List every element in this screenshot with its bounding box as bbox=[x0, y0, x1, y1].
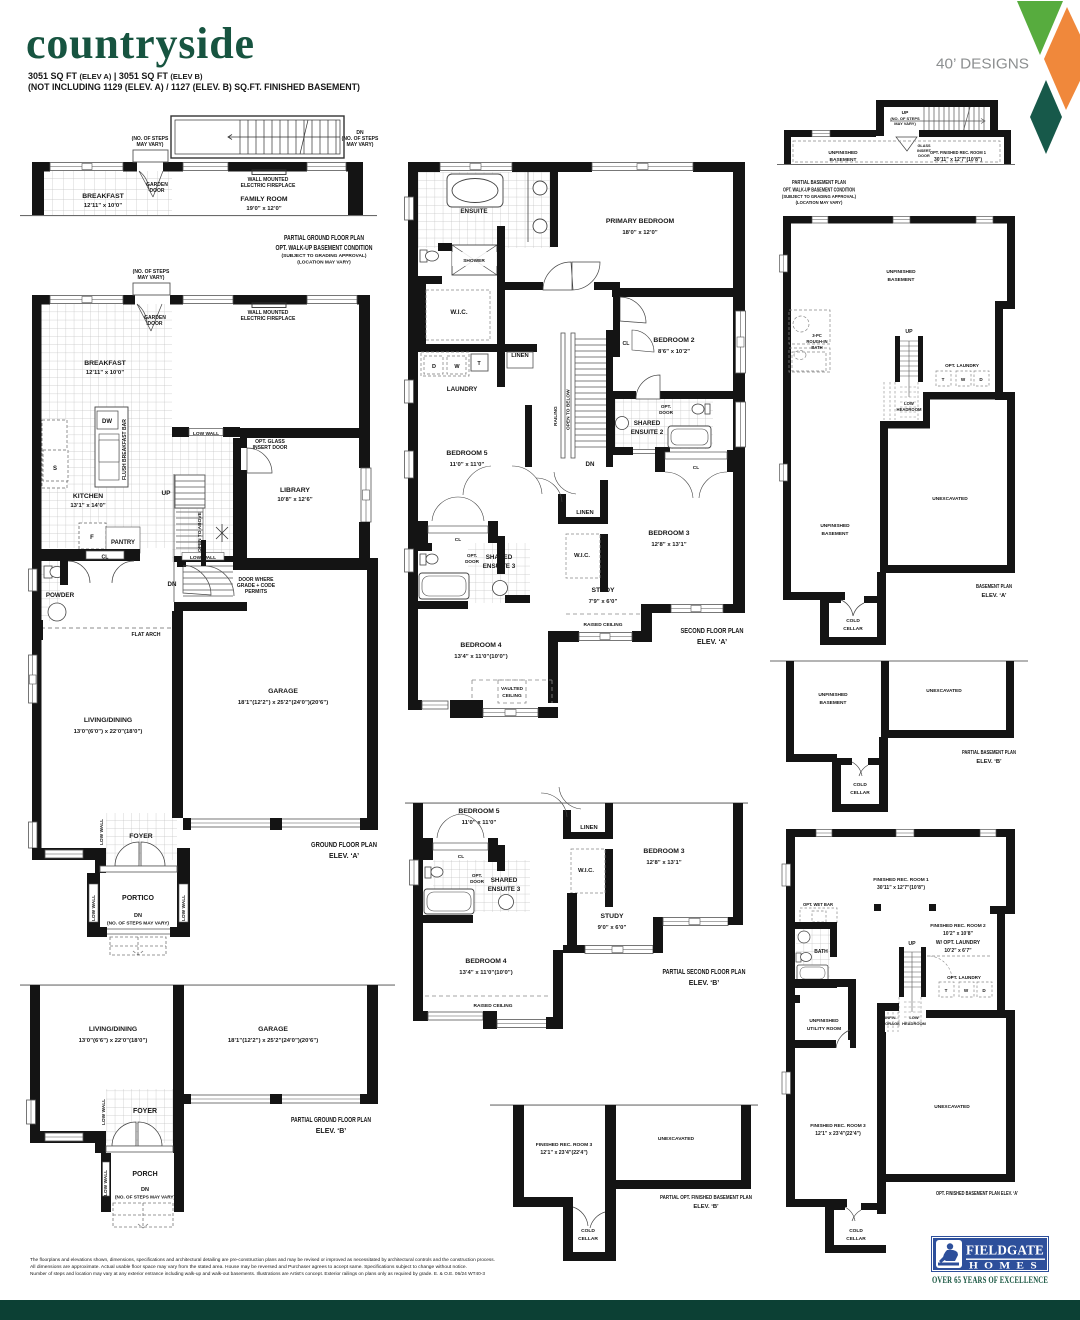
svg-text:UNFINISHED: UNFINISHED bbox=[828, 150, 858, 156]
svg-text:BEDROOM 4: BEDROOM 4 bbox=[465, 958, 506, 965]
svg-text:FLAT ARCH: FLAT ARCH bbox=[131, 632, 160, 638]
svg-text:FOYER: FOYER bbox=[133, 1108, 157, 1115]
svg-text:COLD: COLD bbox=[849, 1228, 863, 1234]
svg-text:T: T bbox=[945, 988, 948, 993]
svg-text:10’2” x 6’7”: 10’2” x 6’7” bbox=[944, 948, 972, 954]
svg-text:DN: DN bbox=[134, 913, 142, 919]
svg-text:UTILITY ROOM: UTILITY ROOM bbox=[807, 1026, 841, 1032]
svg-text:12’8” x 13’1”: 12’8” x 13’1” bbox=[646, 860, 681, 866]
svg-text:12’1” x 23’4”(22’4”): 12’1” x 23’4”(22’4”) bbox=[815, 1131, 861, 1137]
svg-text:BATH: BATH bbox=[811, 345, 822, 350]
svg-text:T: T bbox=[942, 377, 945, 382]
svg-text:DOOR: DOOR bbox=[918, 154, 930, 158]
svg-text:FINISHED REC. ROOM 3: FINISHED REC. ROOM 3 bbox=[536, 1142, 593, 1148]
svg-text:UP: UP bbox=[905, 329, 913, 335]
svg-text:9’0” x 6’0”: 9’0” x 6’0” bbox=[598, 925, 627, 931]
svg-text:8’6” x 10’2”: 8’6” x 10’2” bbox=[658, 349, 690, 355]
svg-text:SHARED: SHARED bbox=[634, 420, 661, 427]
svg-text:UNEXCAVATED: UNEXCAVATED bbox=[658, 1136, 695, 1142]
svg-text:18’1”(12’2”) x 25’2”(24’0”)(20: 18’1”(12’2”) x 25’2”(24’0”)(20’6”) bbox=[238, 700, 328, 706]
svg-text:LOW WALL: LOW WALL bbox=[101, 1099, 107, 1125]
svg-text:GARAGE: GARAGE bbox=[258, 1026, 288, 1033]
svg-text:BREAKFAST: BREAKFAST bbox=[84, 360, 126, 367]
svg-text:LINEN: LINEN bbox=[511, 353, 528, 359]
svg-text:UNFINISHED: UNFINISHED bbox=[809, 1018, 839, 1024]
svg-text:12’11” x 10’0”: 12’11” x 10’0” bbox=[84, 203, 122, 209]
svg-text:UNEXCAVATED: UNEXCAVATED bbox=[934, 1104, 970, 1110]
svg-text:OPT.: OPT. bbox=[661, 404, 671, 409]
svg-text:40’ DESIGNS: 40’ DESIGNS bbox=[936, 56, 1029, 73]
svg-text:CL: CL bbox=[455, 537, 461, 543]
svg-text:COLD: COLD bbox=[846, 618, 860, 624]
svg-text:PARTIAL SECOND FLOOR PLAN: PARTIAL SECOND FLOOR PLAN bbox=[663, 969, 746, 976]
svg-text:OPEN TO BELOW: OPEN TO BELOW bbox=[566, 389, 572, 430]
svg-text:OPT. FINISHED REC. ROOM 1: OPT. FINISHED REC. ROOM 1 bbox=[930, 150, 986, 156]
svg-text:10’2” x 10’8”: 10’2” x 10’8” bbox=[943, 931, 974, 937]
svg-text:F: F bbox=[90, 535, 94, 541]
svg-text:INSERT DOOR: INSERT DOOR bbox=[253, 445, 288, 451]
svg-text:CEILING: CEILING bbox=[502, 693, 522, 699]
svg-text:12’11” x 10’0”: 12’11” x 10’0” bbox=[86, 370, 124, 376]
svg-text:(NOT INCLUDING 1129 (ELEV. A): (NOT INCLUDING 1129 (ELEV. A) / 1127 (EL… bbox=[28, 82, 360, 92]
svg-text:DOOR: DOOR bbox=[659, 410, 673, 415]
svg-text:SHARED: SHARED bbox=[486, 554, 513, 561]
svg-text:13’4” x 11’0”(10’0”): 13’4” x 11’0”(10’0”) bbox=[454, 654, 507, 660]
svg-text:FINISHED REC. ROOM 2: FINISHED REC. ROOM 2 bbox=[930, 923, 986, 929]
svg-text:(SUBJECT TO GRADING APPROVAL): (SUBJECT TO GRADING APPROVAL) bbox=[282, 253, 367, 259]
svg-text:12’1” x 23’4”(22’4”): 12’1” x 23’4”(22’4”) bbox=[540, 1150, 588, 1156]
svg-text:HEADROOM: HEADROOM bbox=[897, 407, 922, 412]
svg-text:MAY VARY): MAY VARY) bbox=[138, 275, 165, 281]
svg-text:ELEV. ‘B’: ELEV. ‘B’ bbox=[693, 1204, 719, 1210]
svg-text:BASEMENT: BASEMENT bbox=[820, 700, 847, 706]
svg-text:BASEMENT: BASEMENT bbox=[830, 157, 857, 163]
svg-text:BASEMENT: BASEMENT bbox=[822, 531, 849, 537]
svg-text:LOW: LOW bbox=[909, 1015, 919, 1020]
svg-text:W.I.C.: W.I.C. bbox=[450, 309, 467, 316]
svg-text:PORCH: PORCH bbox=[132, 1171, 157, 1178]
svg-text:BEDROOM 4: BEDROOM 4 bbox=[460, 642, 501, 649]
svg-text:SHARED: SHARED bbox=[491, 877, 518, 884]
svg-text:STORAGE: STORAGE bbox=[880, 1021, 900, 1026]
svg-text:BASEMENT PLAN: BASEMENT PLAN bbox=[976, 584, 1012, 590]
svg-text:CELLAR: CELLAR bbox=[850, 790, 870, 796]
svg-text:GLASS: GLASS bbox=[917, 144, 931, 148]
svg-text:CELLAR: CELLAR bbox=[846, 1236, 866, 1242]
svg-text:(NO. OF STEPS MAY VARY): (NO. OF STEPS MAY VARY) bbox=[115, 1195, 175, 1200]
svg-text:30’11” x 12’7”(10’8”): 30’11” x 12’7”(10’8”) bbox=[934, 157, 982, 163]
svg-text:PARTIAL GROUND FLOOR PLAN: PARTIAL GROUND FLOOR PLAN bbox=[291, 1117, 371, 1124]
svg-text:KITCHEN: KITCHEN bbox=[73, 493, 103, 500]
svg-text:BEDROOM 5: BEDROOM 5 bbox=[446, 450, 487, 457]
svg-text:DW: DW bbox=[102, 419, 112, 425]
svg-text:OPT. WALK-UP BASEMENT CONDITIO: OPT. WALK-UP BASEMENT CONDITION bbox=[783, 188, 855, 194]
svg-text:CL: CL bbox=[693, 465, 699, 471]
svg-text:ENSUITE 3: ENSUITE 3 bbox=[483, 563, 516, 570]
svg-text:BEDROOM 2: BEDROOM 2 bbox=[653, 337, 694, 344]
svg-text:OPT. LAUNDRY: OPT. LAUNDRY bbox=[947, 975, 981, 980]
svg-text:ENSUITE: ENSUITE bbox=[460, 208, 487, 215]
svg-text:CL: CL bbox=[102, 555, 110, 561]
svg-text:W.I.C.: W.I.C. bbox=[578, 868, 594, 874]
svg-text:LOW: LOW bbox=[904, 401, 914, 406]
svg-text:ELEV. ‘B’: ELEV. ‘B’ bbox=[316, 1128, 347, 1135]
svg-text:UNFINISHED: UNFINISHED bbox=[818, 692, 848, 698]
svg-text:3051 SQ FT (ELEV A) | 3051 S: 3051 SQ FT (ELEV A) | 3051 SQ FT (ELEV B… bbox=[28, 71, 203, 81]
svg-text:HOMES: HOMES bbox=[969, 1261, 1043, 1271]
svg-text:30’11” x 12’7”(10’8”): 30’11” x 12’7”(10’8”) bbox=[877, 885, 925, 891]
svg-text:ENSUITE 3: ENSUITE 3 bbox=[488, 886, 521, 893]
svg-text:BREAKFAST: BREAKFAST bbox=[82, 193, 124, 200]
svg-text:RAILING: RAILING bbox=[553, 406, 559, 426]
svg-text:7’9” x 6’0”: 7’9” x 6’0” bbox=[589, 599, 618, 605]
svg-text:12’8” x 13’1”: 12’8” x 13’1” bbox=[651, 542, 686, 548]
svg-text:LOW WALL: LOW WALL bbox=[99, 819, 105, 845]
svg-text:ELEV. ‘B’: ELEV. ‘B’ bbox=[976, 759, 1002, 765]
svg-text:LIVING/DINING: LIVING/DINING bbox=[89, 1026, 137, 1033]
svg-text:UNEXCAVATED: UNEXCAVATED bbox=[926, 688, 962, 694]
svg-text:PERMITS: PERMITS bbox=[245, 589, 268, 595]
svg-text:18’0” x 12’0”: 18’0” x 12’0” bbox=[622, 230, 657, 236]
svg-text:COLD: COLD bbox=[853, 782, 867, 788]
svg-text:13’1” x 14’0”: 13’1” x 14’0” bbox=[70, 503, 105, 509]
svg-text:W: W bbox=[454, 364, 460, 370]
svg-text:The floorplans and elevations: The floorplans and elevations shown, dim… bbox=[30, 1257, 495, 1262]
svg-text:PARTIAL BASEMENT PLAN: PARTIAL BASEMENT PLAN bbox=[792, 180, 846, 186]
svg-text:D: D bbox=[432, 364, 436, 370]
svg-text:CL: CL bbox=[458, 854, 464, 860]
svg-text:BEDROOM 3: BEDROOM 3 bbox=[643, 848, 684, 855]
svg-text:PANTRY: PANTRY bbox=[111, 540, 135, 546]
svg-text:MAY VARY): MAY VARY) bbox=[137, 142, 164, 148]
svg-text:LINEN: LINEN bbox=[580, 825, 597, 831]
svg-text:DN: DN bbox=[141, 1187, 149, 1193]
svg-text:PORTICO: PORTICO bbox=[122, 895, 154, 902]
svg-text:UNEXCAVATED: UNEXCAVATED bbox=[932, 496, 968, 502]
svg-text:11’0” x 11’0”: 11’0” x 11’0” bbox=[462, 820, 497, 826]
svg-text:PARTIAL GROUND FLOOR PLAN: PARTIAL GROUND FLOOR PLAN bbox=[284, 235, 364, 242]
svg-text:HEADROOM: HEADROOM bbox=[902, 1021, 926, 1026]
svg-text:GROUND FLOOR PLAN: GROUND FLOOR PLAN bbox=[311, 842, 377, 849]
svg-text:FAMILY ROOM: FAMILY ROOM bbox=[240, 196, 288, 203]
svg-text:PRIMARY BEDROOM: PRIMARY BEDROOM bbox=[606, 218, 675, 225]
svg-text:DOOR: DOOR bbox=[470, 879, 484, 884]
svg-text:LOW WALL: LOW WALL bbox=[91, 895, 97, 921]
svg-text:OPT. WET BAR: OPT. WET BAR bbox=[803, 902, 833, 907]
svg-text:LOW WALL: LOW WALL bbox=[181, 895, 187, 921]
svg-text:ROUGH-IN: ROUGH-IN bbox=[806, 339, 827, 344]
svg-text:BATH: BATH bbox=[814, 949, 828, 955]
svg-text:STUDY: STUDY bbox=[591, 587, 615, 594]
svg-text:UNFINISHED: UNFINISHED bbox=[820, 523, 850, 529]
svg-text:W: W bbox=[961, 377, 966, 382]
svg-text:OPT.: OPT. bbox=[467, 553, 477, 558]
svg-text:MAY VARY): MAY VARY) bbox=[894, 121, 916, 126]
svg-text:(NO. OF STEPS MAY VARY): (NO. OF STEPS MAY VARY) bbox=[107, 921, 169, 926]
svg-text:UNFINISHED: UNFINISHED bbox=[886, 269, 916, 275]
svg-text:ELEV. ‘A’: ELEV. ‘A’ bbox=[697, 639, 727, 646]
svg-text:W/ OPT. LAUNDRY: W/ OPT. LAUNDRY bbox=[936, 940, 981, 946]
svg-text:CL: CL bbox=[623, 341, 631, 347]
svg-text:All dimensions are approximate: All dimensions are approximate. Actual u… bbox=[30, 1264, 467, 1269]
svg-text:FINISHED REC. ROOM 1: FINISHED REC. ROOM 1 bbox=[873, 877, 929, 883]
svg-text:LINEN: LINEN bbox=[576, 510, 593, 516]
svg-text:OPT. WALK-UP BASEMENT CONDITIO: OPT. WALK-UP BASEMENT CONDITION bbox=[276, 245, 373, 252]
svg-text:DOOR: DOOR bbox=[148, 321, 163, 327]
svg-text:ELECTRIC FIREPLACE: ELECTRIC FIREPLACE bbox=[241, 316, 296, 322]
svg-text:ELEV. ‘A’: ELEV. ‘A’ bbox=[329, 853, 359, 860]
svg-text:3-PC: 3-PC bbox=[812, 333, 822, 338]
svg-text:FINISHED REC. ROOM 3: FINISHED REC. ROOM 3 bbox=[810, 1123, 866, 1129]
svg-text:13’0”(6’0”) x 22’0”(18’0”): 13’0”(6’0”) x 22’0”(18’0”) bbox=[74, 729, 143, 735]
svg-text:CELLAR: CELLAR bbox=[843, 626, 863, 632]
svg-text:BEDROOM 3: BEDROOM 3 bbox=[648, 530, 689, 537]
svg-text:OPT. UPPERS: OPT. UPPERS bbox=[430, 348, 460, 353]
svg-text:countryside: countryside bbox=[26, 19, 255, 68]
svg-text:RAISED CEILING: RAISED CEILING bbox=[474, 1003, 513, 1009]
svg-text:BASEMENT: BASEMENT bbox=[888, 277, 915, 283]
svg-text:S: S bbox=[53, 466, 57, 472]
svg-text:(SUBJECT TO GRADING APPROVAL): (SUBJECT TO GRADING APPROVAL) bbox=[782, 194, 857, 199]
svg-text:BEDROOM 5: BEDROOM 5 bbox=[458, 808, 499, 815]
svg-text:GARAGE: GARAGE bbox=[268, 688, 298, 695]
svg-text:LOW WALL: LOW WALL bbox=[103, 1170, 109, 1196]
svg-text:13’0”(6’6”) x 22’0”(18’0”): 13’0”(6’6”) x 22’0”(18’0”) bbox=[79, 1038, 148, 1044]
svg-text:DN: DN bbox=[168, 581, 177, 588]
svg-text:UP: UP bbox=[908, 941, 916, 947]
svg-text:ELECTRIC FIREPLACE: ELECTRIC FIREPLACE bbox=[241, 183, 296, 189]
svg-text:OPT. LAUNDRY: OPT. LAUNDRY bbox=[945, 363, 979, 368]
svg-text:10’8” x 12’6”: 10’8” x 12’6” bbox=[277, 497, 312, 503]
svg-text:UNFIN.: UNFIN. bbox=[883, 1015, 896, 1020]
svg-text:DN: DN bbox=[586, 461, 595, 468]
svg-text:LOW WALL: LOW WALL bbox=[193, 431, 219, 437]
svg-text:(LOCATION MAY VARY): (LOCATION MAY VARY) bbox=[297, 260, 351, 266]
svg-text:(LOCATION MAY VARY): (LOCATION MAY VARY) bbox=[796, 200, 843, 205]
svg-text:POWDER: POWDER bbox=[46, 592, 75, 599]
svg-text:CELLAR: CELLAR bbox=[578, 1236, 598, 1242]
svg-text:13’4” x 11’0”(10’0”): 13’4” x 11’0”(10’0”) bbox=[459, 970, 512, 976]
svg-text:OPT. FINISHED BASEMENT PLAN EL: OPT. FINISHED BASEMENT PLAN ELEV. ‘A’ bbox=[936, 1191, 1018, 1197]
svg-text:ELEV. ‘A’: ELEV. ‘A’ bbox=[982, 593, 1007, 599]
svg-text:COLD: COLD bbox=[581, 1228, 595, 1234]
svg-text:11’0” x 11’0”: 11’0” x 11’0” bbox=[450, 462, 485, 468]
svg-text:SECOND FLOOR PLAN: SECOND FLOOR PLAN bbox=[681, 628, 744, 635]
svg-text:VAULTED: VAULTED bbox=[501, 686, 523, 692]
svg-text:FIELDGATE: FIELDGATE bbox=[966, 1244, 1044, 1259]
svg-text:PARTIAL BASEMENT PLAN: PARTIAL BASEMENT PLAN bbox=[962, 750, 1016, 756]
svg-text:18’1”(12’2”) x 25’2”(24’0”)(20: 18’1”(12’2”) x 25’2”(24’0”)(20’6”) bbox=[228, 1038, 318, 1044]
svg-text:STUDY: STUDY bbox=[600, 913, 624, 920]
svg-text:OVER 65 YEARS OF EXCELLENCE: OVER 65 YEARS OF EXCELLENCE bbox=[932, 1276, 1048, 1286]
svg-text:MAY VARY): MAY VARY) bbox=[347, 142, 374, 148]
svg-text:FLUSH BREAKFAST BAR: FLUSH BREAKFAST BAR bbox=[122, 419, 128, 480]
svg-text:SHOWER: SHOWER bbox=[463, 258, 485, 264]
svg-text:UP: UP bbox=[161, 490, 171, 497]
svg-text:ELEV. ‘B’: ELEV. ‘B’ bbox=[689, 980, 720, 987]
svg-text:19’0” x 12’0”: 19’0” x 12’0” bbox=[246, 206, 281, 212]
svg-text:OPT.: OPT. bbox=[472, 873, 482, 878]
svg-text:LIVING/DINING: LIVING/DINING bbox=[84, 717, 132, 724]
svg-text:Number of steps and location m: Number of steps and location may vary at… bbox=[30, 1271, 486, 1276]
svg-text:ENSUITE 2: ENSUITE 2 bbox=[631, 429, 664, 436]
svg-text:LIBRARY: LIBRARY bbox=[280, 487, 310, 494]
svg-text:DOOR: DOOR bbox=[150, 188, 165, 194]
svg-text:DOOR: DOOR bbox=[465, 559, 479, 564]
svg-text:PARTIAL OPT. FINISHED BASEMENT: PARTIAL OPT. FINISHED BASEMENT PLAN bbox=[660, 1195, 752, 1201]
svg-text:FOYER: FOYER bbox=[129, 833, 153, 840]
svg-text:W.I.C.: W.I.C. bbox=[574, 553, 590, 559]
svg-text:RAISED CEILING: RAISED CEILING bbox=[584, 622, 623, 628]
svg-text:W: W bbox=[964, 988, 969, 993]
svg-text:LAUNDRY: LAUNDRY bbox=[447, 386, 478, 393]
